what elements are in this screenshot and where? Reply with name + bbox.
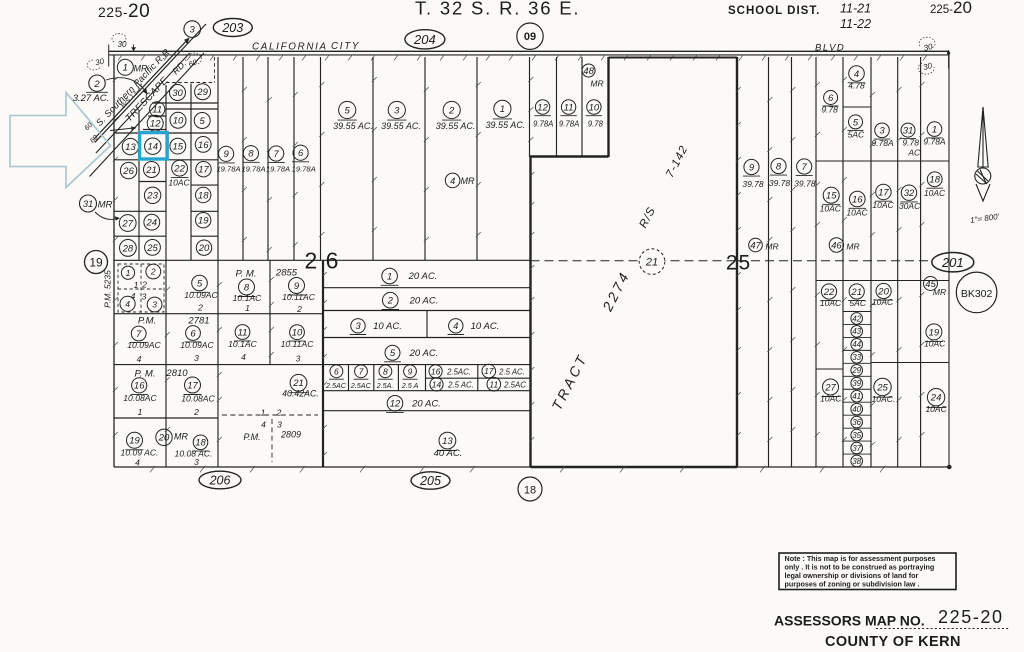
svg-text:10.09 AC.: 10.09 AC.	[121, 448, 159, 458]
svg-text:3: 3	[355, 321, 361, 332]
svg-text:12: 12	[150, 119, 161, 130]
svg-text:39.78: 39.78	[742, 179, 764, 189]
svg-text:3: 3	[277, 420, 282, 430]
svg-text:24: 24	[930, 393, 942, 404]
svg-text:1: 1	[387, 271, 392, 282]
svg-text:2.5 AC.: 2.5 AC.	[498, 368, 525, 377]
svg-text:2855: 2855	[275, 268, 298, 279]
svg-text:16: 16	[852, 194, 863, 205]
svg-text:4: 4	[241, 352, 246, 362]
svg-text:9.78A: 9.78A	[533, 120, 553, 129]
svg-text:225-20: 225-20	[930, 0, 972, 17]
svg-text:16: 16	[134, 381, 145, 392]
svg-text:9.78A: 9.78A	[871, 138, 894, 148]
svg-text:19.78A: 19.78A	[216, 165, 240, 174]
svg-text:39.55 AC.: 39.55 AC.	[486, 120, 526, 130]
svg-text:10.08AC: 10.08AC	[123, 393, 157, 403]
svg-text:25: 25	[726, 252, 751, 275]
svg-text:14: 14	[148, 142, 159, 153]
svg-text:MR: MR	[765, 242, 778, 252]
svg-text:14: 14	[432, 379, 442, 389]
svg-text:MR: MR	[933, 287, 946, 297]
svg-text:7: 7	[136, 329, 142, 340]
svg-text:RD.: RD.	[170, 58, 188, 76]
svg-text:19.78A: 19.78A	[266, 165, 290, 174]
svg-text:11-22: 11-22	[840, 17, 871, 31]
svg-text:2.5AC: 2.5AC	[325, 381, 347, 390]
svg-text:11: 11	[238, 327, 248, 338]
svg-text:10: 10	[292, 328, 303, 339]
svg-text:44: 44	[852, 340, 861, 349]
svg-text:2.5 AC.: 2.5 AC.	[447, 381, 474, 390]
svg-text:15: 15	[173, 142, 184, 153]
svg-text:R/S: R/S	[637, 205, 658, 230]
svg-text:2: 2	[93, 79, 100, 90]
svg-text:36: 36	[852, 418, 861, 427]
svg-text:1: 1	[134, 280, 139, 290]
svg-text:18: 18	[195, 438, 206, 449]
svg-text:2.5AC: 2.5AC	[350, 381, 372, 390]
svg-text:10.09AC: 10.09AC	[184, 290, 218, 300]
svg-text:16: 16	[198, 140, 209, 151]
svg-text:3: 3	[152, 300, 157, 310]
svg-text:7: 7	[359, 366, 364, 376]
svg-text:3: 3	[394, 105, 400, 116]
svg-text:7-142: 7-142	[664, 144, 690, 180]
svg-text:10AC: 10AC	[846, 208, 868, 218]
svg-text:17: 17	[198, 165, 209, 176]
svg-text:2.5AC: 2.5AC	[503, 381, 526, 390]
svg-text:TRACT: TRACT	[548, 351, 590, 413]
svg-text:9.78: 9.78	[588, 120, 604, 129]
svg-text:8: 8	[776, 161, 782, 172]
svg-text:16: 16	[431, 366, 441, 376]
svg-text:10.1AC: 10.1AC	[233, 293, 262, 303]
svg-text:3: 3	[142, 292, 147, 302]
svg-text:18: 18	[929, 175, 940, 186]
svg-text:20 AC.: 20 AC.	[409, 296, 439, 307]
svg-text:9: 9	[223, 149, 229, 160]
svg-text:37: 37	[852, 444, 861, 453]
svg-text:MR: MR	[590, 79, 603, 89]
svg-text:8: 8	[383, 366, 388, 376]
svg-text:6: 6	[334, 366, 339, 376]
svg-text:5: 5	[345, 105, 351, 116]
svg-text:10AC: 10AC	[820, 204, 842, 214]
svg-text:39.78: 39.78	[794, 179, 816, 189]
svg-text:20 AC.: 20 AC.	[411, 399, 441, 410]
svg-text:9.78: 9.78	[821, 105, 838, 115]
svg-text:206: 206	[209, 474, 231, 488]
svg-text:22: 22	[173, 164, 185, 175]
svg-text:19: 19	[129, 436, 140, 447]
svg-text:4.78: 4.78	[848, 81, 865, 91]
svg-text:3: 3	[194, 353, 199, 363]
svg-text:39.55 AC.: 39.55 AC.	[436, 121, 476, 131]
svg-text:30: 30	[94, 57, 105, 68]
svg-text:20: 20	[877, 286, 889, 297]
svg-text:201: 201	[941, 255, 964, 270]
svg-text:40: 40	[852, 405, 861, 414]
svg-text:10AC: 10AC	[168, 178, 190, 188]
svg-text:2.5A.: 2.5A.	[376, 381, 394, 390]
svg-text:19: 19	[929, 327, 940, 338]
svg-text:19: 19	[198, 216, 209, 227]
svg-text:43: 43	[852, 327, 861, 336]
svg-text:8: 8	[248, 149, 254, 160]
svg-text:35: 35	[852, 431, 861, 440]
svg-text:48: 48	[583, 66, 594, 77]
svg-text:1: 1	[138, 407, 143, 417]
svg-text:41: 41	[852, 392, 861, 401]
svg-text:9: 9	[294, 281, 300, 292]
svg-text:40.42AC.: 40.42AC.	[282, 389, 319, 399]
svg-text:10AC: 10AC	[925, 404, 947, 414]
svg-text:2.5 A: 2.5 A	[401, 381, 419, 390]
svg-text:2810: 2810	[165, 368, 188, 379]
svg-text:MR: MR	[174, 432, 188, 442]
svg-text:27: 27	[121, 218, 133, 229]
svg-text:26: 26	[122, 166, 134, 177]
svg-text:10AC: 10AC	[872, 297, 894, 307]
svg-text:6: 6	[190, 328, 196, 339]
svg-text:1: 1	[500, 104, 505, 115]
svg-text:10AC: 10AC	[924, 339, 946, 349]
svg-text:18: 18	[198, 190, 209, 201]
svg-text:1: 1	[123, 63, 128, 74]
svg-text:4: 4	[131, 291, 136, 301]
svg-text:6: 6	[298, 148, 304, 159]
svg-text:3: 3	[194, 457, 199, 467]
svg-text:4: 4	[450, 176, 455, 187]
svg-text:29: 29	[851, 366, 861, 375]
svg-text:12: 12	[537, 102, 548, 113]
svg-text:1″= 800′: 1″= 800′	[970, 212, 1000, 225]
svg-text:AC: AC	[907, 148, 921, 158]
svg-text:2: 2	[448, 105, 455, 116]
svg-text:11: 11	[152, 105, 162, 116]
svg-text:1: 1	[126, 268, 131, 278]
svg-text:11-21: 11-21	[840, 2, 871, 16]
svg-text:10.1AC: 10.1AC	[228, 339, 257, 349]
svg-text:10AC: 10AC	[820, 394, 842, 404]
svg-text:9.78A: 9.78A	[559, 120, 579, 129]
svg-text:203: 203	[221, 21, 243, 35]
svg-text:10AC: 10AC	[820, 298, 842, 308]
svg-text:31: 31	[83, 199, 94, 210]
svg-text:CALIFORNIA: CALIFORNIA	[252, 42, 328, 53]
svg-text:27: 27	[824, 382, 836, 393]
svg-text:23: 23	[146, 191, 158, 202]
svg-text:15: 15	[826, 191, 837, 202]
svg-text:7: 7	[802, 162, 808, 173]
svg-text:40 AC.: 40 AC.	[434, 448, 463, 459]
svg-text:19.78A: 19.78A	[241, 165, 265, 174]
svg-text:60: 60	[89, 134, 100, 145]
svg-text:1: 1	[245, 303, 250, 313]
svg-text:42: 42	[852, 314, 861, 323]
svg-text:MR: MR	[461, 176, 475, 186]
svg-text:20: 20	[158, 433, 170, 444]
svg-text:12: 12	[390, 399, 401, 410]
svg-text:33: 33	[852, 353, 861, 362]
svg-text:204: 204	[413, 32, 436, 47]
svg-text:10.11AC: 10.11AC	[282, 292, 316, 302]
svg-text:30: 30	[118, 40, 127, 49]
svg-text:4: 4	[854, 69, 859, 80]
svg-text:1: 1	[261, 408, 266, 418]
svg-text:13: 13	[125, 142, 136, 153]
svg-text:9.78A: 9.78A	[923, 137, 946, 147]
svg-text:2781: 2781	[187, 316, 209, 327]
svg-text:25: 25	[876, 382, 888, 393]
svg-text:2: 2	[387, 296, 394, 307]
svg-text:3.27 AC.: 3.27 AC.	[73, 93, 110, 104]
svg-text:2809: 2809	[280, 430, 301, 440]
svg-text:11: 11	[489, 379, 498, 389]
svg-text:5: 5	[197, 278, 203, 289]
svg-text:39: 39	[852, 379, 861, 388]
svg-text:47: 47	[750, 240, 761, 251]
svg-text:MR: MR	[134, 64, 148, 74]
svg-text:19.78A: 19.78A	[292, 165, 316, 174]
svg-text:10 AC.: 10 AC.	[471, 321, 500, 332]
svg-text:225-20: 225-20	[938, 607, 1004, 627]
svg-text:4: 4	[135, 458, 140, 468]
svg-text:17: 17	[878, 187, 889, 198]
svg-text:P.M.: P.M.	[243, 432, 260, 442]
svg-text:30: 30	[172, 88, 183, 99]
svg-text:30AC: 30AC	[899, 201, 921, 211]
svg-text:P.M.: P.M.	[138, 316, 156, 327]
svg-text:19: 19	[89, 256, 103, 270]
svg-text:18: 18	[524, 484, 536, 496]
svg-text:13: 13	[442, 436, 453, 447]
svg-text:5AC: 5AC	[848, 130, 865, 140]
svg-text:5: 5	[200, 116, 206, 127]
svg-text:9: 9	[408, 366, 413, 376]
svg-text:2.5AC.: 2.5AC.	[446, 368, 471, 377]
svg-text:2: 2	[197, 303, 203, 313]
svg-text:8: 8	[244, 282, 250, 293]
svg-text:10 AC.: 10 AC.	[373, 321, 402, 332]
svg-text:3: 3	[879, 126, 885, 137]
svg-text:11: 11	[564, 102, 574, 113]
svg-text:COUNTY OF KERN: COUNTY OF KERN	[825, 634, 961, 650]
svg-text:2: 2	[150, 267, 156, 277]
svg-text:2: 2	[276, 408, 282, 418]
svg-text:10: 10	[589, 102, 600, 113]
svg-text:24: 24	[146, 218, 158, 229]
svg-text:7: 7	[274, 149, 280, 160]
svg-text:CITY: CITY	[331, 41, 360, 52]
svg-text:1: 1	[932, 125, 937, 136]
svg-text:39.55 AC.: 39.55 AC.	[381, 121, 421, 131]
svg-text:4: 4	[137, 354, 142, 364]
svg-text:MR: MR	[846, 242, 859, 252]
svg-text:21: 21	[645, 257, 658, 269]
svg-text:225-20: 225-20	[98, 1, 150, 22]
svg-text:60: 60	[187, 57, 199, 69]
svg-text:5: 5	[853, 117, 859, 128]
svg-text:30: 30	[922, 61, 933, 72]
svg-text:20: 20	[198, 243, 210, 254]
svg-text:T. 32 S. R. 36 E.: T. 32 S. R. 36 E.	[415, 0, 580, 19]
svg-text:4: 4	[453, 321, 458, 332]
svg-text:9.78: 9.78	[902, 138, 919, 148]
svg-text:20 AC.: 20 AC.	[408, 271, 438, 282]
svg-text:9: 9	[749, 162, 755, 173]
svg-text:2: 2	[141, 280, 147, 290]
svg-text:10AC: 10AC	[872, 200, 894, 210]
svg-text:38: 38	[852, 457, 861, 466]
svg-text:205: 205	[419, 474, 441, 488]
svg-text:17: 17	[484, 366, 494, 376]
svg-text:5AC: 5AC	[849, 298, 866, 308]
svg-text:5: 5	[390, 348, 396, 359]
svg-text:28: 28	[122, 243, 134, 254]
svg-text:25: 25	[146, 243, 158, 254]
svg-text:10.11AC: 10.11AC	[281, 339, 315, 349]
svg-text:4: 4	[261, 420, 266, 430]
svg-text:3: 3	[190, 25, 196, 36]
svg-text:6: 6	[828, 93, 834, 104]
svg-text:29: 29	[196, 87, 208, 98]
svg-text:SCHOOL DIST.: SCHOOL DIST.	[728, 5, 820, 17]
svg-text:39.78: 39.78	[769, 178, 791, 188]
svg-text:ASSESSORS MAP NO.: ASSESSORS MAP NO.	[774, 613, 925, 629]
svg-text:31: 31	[903, 126, 914, 137]
svg-text:2274: 2274	[599, 268, 633, 315]
svg-text:purposes of zoning or subdivis: purposes of zoning or subdivision law .	[785, 580, 920, 589]
svg-text:10: 10	[173, 116, 184, 127]
svg-text:BLVD: BLVD	[815, 43, 845, 54]
svg-text:2: 2	[296, 304, 302, 314]
svg-text:10AC.: 10AC.	[872, 394, 896, 404]
svg-text:2: 2	[193, 407, 199, 417]
svg-text:10AC: 10AC	[924, 188, 946, 198]
svg-text:3: 3	[296, 354, 301, 364]
svg-text:21: 21	[850, 287, 862, 298]
svg-text:46: 46	[831, 240, 842, 251]
svg-text:10.08AC: 10.08AC	[181, 394, 215, 404]
svg-text:09: 09	[524, 31, 536, 43]
svg-text:32: 32	[904, 188, 915, 199]
svg-text:39.55 AC.: 39.55 AC.	[333, 121, 373, 131]
svg-text:17: 17	[187, 380, 198, 391]
svg-text:P.M. 5235: P.M. 5235	[103, 270, 113, 308]
svg-text:10.09AC: 10.09AC	[127, 340, 161, 350]
svg-text:MR: MR	[98, 200, 113, 211]
svg-text:20 AC.: 20 AC.	[409, 348, 439, 359]
svg-text:10.09AC: 10.09AC	[180, 340, 214, 350]
svg-text:22: 22	[823, 287, 835, 298]
svg-text:P. M.: P. M.	[236, 269, 257, 280]
svg-text:4: 4	[125, 299, 130, 309]
svg-text:BK302: BK302	[961, 288, 993, 300]
svg-text:21: 21	[145, 165, 157, 176]
